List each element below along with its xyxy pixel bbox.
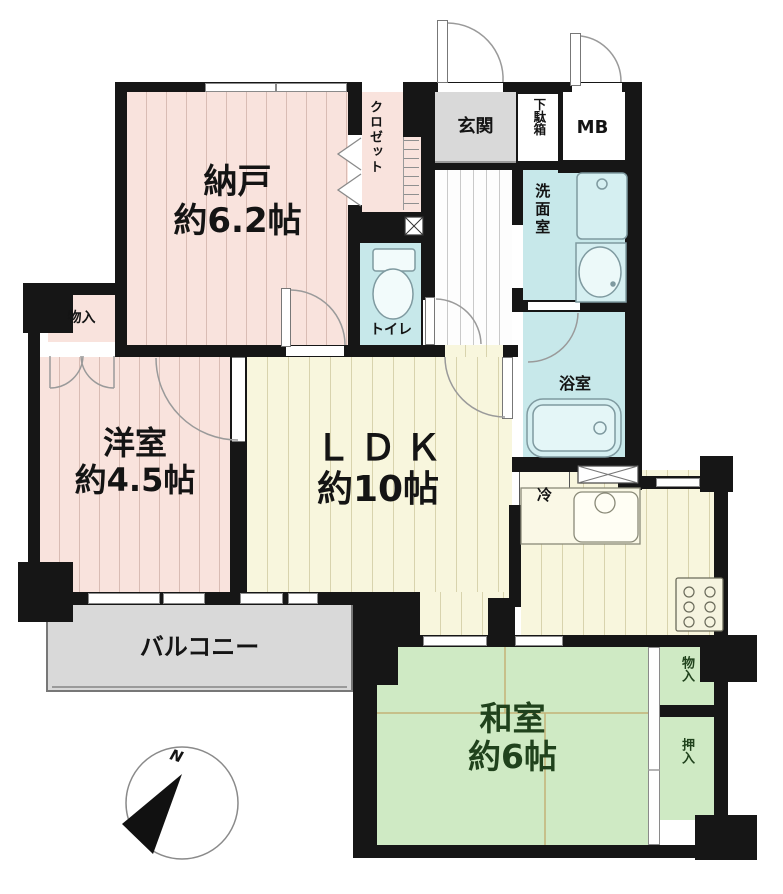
closet-bifold-opening: [348, 135, 362, 205]
washitsu-size: 約6帖: [377, 738, 648, 776]
senmen-door-opening: [512, 225, 523, 288]
entrance-door-leaf: [437, 20, 448, 83]
window: [88, 593, 160, 604]
balcony-railing: [52, 686, 347, 688]
senmen-label: 洗面室: [533, 183, 550, 237]
sliding-door: [423, 636, 487, 646]
toilet-label: トイレ: [360, 322, 422, 338]
nando-name: 納戸: [127, 163, 348, 202]
ldk-size: 約10帖: [247, 469, 509, 510]
wall: [714, 490, 728, 647]
entrance-door-arc: [448, 23, 503, 82]
north-arrow: [122, 774, 182, 854]
ldk-name: ＬＤＫ: [247, 428, 509, 469]
bath-label: 浴室: [540, 375, 610, 393]
monoire-west-label: 物入: [48, 310, 115, 326]
oshiire-label: 押入: [678, 738, 693, 764]
wall: [343, 345, 445, 357]
wall: [503, 345, 518, 357]
closet-label: クロゼット: [366, 100, 381, 175]
ldk-door-leaf: [502, 357, 513, 419]
wall: [625, 82, 642, 472]
wall: [348, 82, 362, 135]
monoire-east-label: 物入: [678, 656, 693, 682]
wall-column: [695, 815, 757, 860]
wall: [348, 212, 435, 243]
mb-label: MB: [563, 118, 622, 139]
wall-column: [403, 82, 423, 137]
window: [276, 83, 347, 92]
yoshitsu-size: 約4.5帖: [40, 462, 230, 499]
sliding-door: [648, 647, 660, 845]
floor-plan: 納戸 約6.2帖 クロゼット 玄関 下駄箱 MB 洗面室 トイレ 浴室 洋室 約…: [0, 0, 783, 894]
nando-door-opening: [286, 346, 344, 356]
sliding-door: [515, 636, 563, 646]
monoire-west-opening: [48, 342, 115, 352]
getabako-label: 下駄箱: [531, 98, 545, 136]
wall-column: [700, 456, 733, 492]
hallway: [435, 165, 512, 347]
genkan-step-line: [435, 161, 516, 163]
washitsu-name: 和室: [377, 700, 648, 738]
window: [656, 478, 700, 487]
entrance-door-opening: [438, 83, 503, 92]
north-label: N: [168, 746, 185, 766]
window: [240, 593, 283, 604]
rei-label: 冷: [520, 487, 569, 504]
wall: [353, 683, 377, 857]
balcony-label: バルコニー: [46, 634, 353, 662]
wall: [558, 160, 642, 173]
washitsu-label: 和室 約6帖: [377, 700, 648, 776]
nando-label: 納戸 約6.2帖: [127, 163, 348, 241]
wall: [348, 235, 360, 357]
genkan-label: 玄関: [435, 117, 516, 138]
wall: [422, 243, 435, 303]
wall: [488, 598, 515, 638]
wall: [714, 680, 728, 820]
window: [163, 593, 205, 604]
window: [205, 83, 276, 92]
room-oshiire: [660, 717, 714, 820]
nando-size: 約6.2帖: [127, 202, 348, 241]
wall-column: [353, 647, 398, 685]
wall-column: [700, 635, 757, 682]
yoshitsu-label: 洋室 約4.5帖: [40, 425, 230, 499]
yoshitsu-door-opening: [232, 357, 245, 442]
wall: [28, 295, 40, 605]
toilet-door-leaf: [425, 297, 435, 345]
wall: [509, 505, 521, 607]
mb-door-leaf: [570, 33, 581, 86]
ldk-label: ＬＤＫ 約10帖: [247, 428, 509, 511]
yoshitsu-name: 洋室: [40, 425, 230, 462]
mb-door-arc: [581, 36, 621, 82]
window: [288, 593, 318, 604]
wall: [353, 845, 703, 858]
room-ldk-opening: [445, 345, 503, 357]
wall-column: [353, 592, 420, 647]
nando-door-leaf: [281, 288, 291, 347]
wall: [115, 82, 127, 355]
bath-door-opening: [528, 302, 580, 310]
